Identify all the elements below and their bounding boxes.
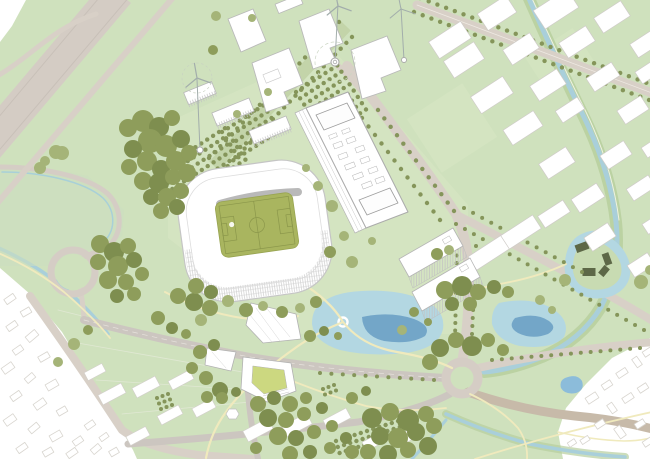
orchard-tree-dot	[236, 155, 240, 159]
street-tree-dot	[447, 23, 451, 27]
street-tree-dot	[376, 108, 380, 112]
tree	[407, 423, 425, 441]
orchard-tree-dot	[242, 151, 246, 155]
street-tree-dot	[560, 65, 564, 69]
orchard-tree-dot	[327, 385, 331, 389]
tree	[316, 402, 328, 414]
street-tree-dot	[629, 91, 633, 95]
tree	[211, 11, 221, 21]
street-tree-dot	[618, 348, 622, 352]
tree	[250, 396, 266, 412]
tree	[288, 430, 304, 446]
street-tree-dot	[418, 192, 422, 196]
street-tree-dot	[329, 372, 333, 376]
street-tree-dot	[454, 222, 458, 226]
street-tree-dot	[552, 278, 556, 282]
street-tree-dot	[366, 124, 370, 128]
orchard-tree-dot	[329, 67, 333, 71]
street-tree-dot	[549, 353, 553, 357]
tree	[409, 307, 419, 317]
orchard-tree-dot	[326, 87, 330, 91]
tree	[362, 408, 382, 428]
street-tree-dot	[425, 201, 429, 205]
tree	[431, 339, 449, 357]
street-tree-dot	[431, 209, 435, 213]
tree	[319, 326, 329, 336]
street-tree-dot	[438, 20, 442, 24]
tree	[445, 297, 459, 311]
wind-turbine-base	[197, 147, 203, 153]
tree	[334, 332, 342, 340]
orchard-tree-dot	[356, 95, 360, 99]
tree	[250, 442, 262, 454]
street-tree-dot	[454, 314, 458, 318]
street-tree-dot	[480, 216, 484, 220]
orchard-tree-dot	[211, 134, 215, 138]
street-tree-dot	[293, 93, 297, 97]
tree	[181, 329, 191, 339]
orchard-tree-dot	[347, 82, 351, 86]
street-tree-dot	[471, 316, 475, 320]
pond-small	[561, 376, 583, 393]
street-tree-dot	[535, 245, 539, 249]
street-tree-dot	[633, 323, 637, 327]
orchard-tree-dot	[308, 99, 312, 103]
tree	[178, 164, 196, 182]
street-tree-dot	[540, 41, 544, 45]
street-tree-dot	[429, 16, 433, 20]
street-tree-dot	[588, 298, 592, 302]
street-tree-dot	[444, 6, 448, 10]
street-tree-dot	[453, 329, 457, 333]
tree	[497, 344, 509, 356]
orchard-tree-dot	[155, 396, 159, 400]
tree	[422, 354, 438, 370]
street-tree-dot	[398, 376, 402, 380]
tree	[170, 288, 186, 304]
street-tree-dot	[608, 348, 612, 352]
orchard-tree-dot	[334, 389, 338, 393]
tree	[222, 295, 234, 307]
street-tree-dot	[462, 206, 466, 210]
street-tree-dot	[474, 244, 478, 248]
orchard-tree-dot	[360, 101, 364, 105]
street-tree-dot	[589, 350, 593, 354]
orchard-tree-dot	[298, 96, 302, 100]
street-tree-dot	[505, 28, 509, 32]
tree	[259, 409, 277, 427]
orchard-tree-dot	[321, 387, 325, 391]
street-tree-dot	[526, 262, 530, 266]
tree	[181, 145, 197, 161]
street-tree-dot	[421, 377, 425, 381]
tree	[53, 357, 63, 367]
orchard-tree-dot	[255, 107, 259, 111]
street-tree-dot	[445, 200, 449, 204]
orchard-tree-dot	[323, 393, 327, 397]
street-tree-dot	[568, 68, 572, 72]
street-tree-dot	[364, 374, 368, 378]
tree	[339, 231, 349, 241]
street-tree-dot	[432, 378, 436, 382]
tree	[436, 281, 454, 299]
street-tree-dot	[570, 288, 574, 292]
tree	[634, 275, 648, 289]
tree	[195, 314, 207, 326]
street-tree-dot	[577, 72, 581, 76]
street-tree-dot	[520, 356, 524, 360]
tree	[426, 418, 442, 434]
orchard-tree-dot	[219, 146, 223, 150]
orchard-tree-dot	[224, 136, 228, 140]
street-tree-dot	[571, 265, 575, 269]
street-tree-dot	[557, 48, 561, 52]
tree	[463, 297, 477, 311]
orchard-tree-dot	[248, 147, 252, 151]
orchard-tree-dot	[168, 398, 172, 402]
tree	[448, 332, 464, 348]
map-layers	[0, 0, 650, 459]
tree	[462, 336, 482, 356]
tree	[400, 442, 416, 458]
tree	[313, 181, 323, 191]
orchard-tree-dot	[228, 142, 232, 146]
orchard-tree-dot	[336, 90, 340, 94]
tree	[188, 278, 204, 294]
tree	[204, 285, 218, 299]
tree	[110, 289, 124, 303]
street-tree-dot	[386, 375, 390, 379]
street-tree-dot	[638, 346, 642, 350]
tree	[431, 248, 443, 260]
tree	[397, 325, 407, 335]
tree	[248, 14, 256, 22]
tree	[297, 407, 311, 421]
roundabout-center	[451, 367, 473, 389]
orchard-tree-dot	[337, 451, 341, 455]
tree	[361, 386, 371, 396]
orchard-tree-dot	[259, 113, 263, 117]
street-tree-dot	[627, 74, 631, 78]
street-tree-dot	[579, 293, 583, 297]
tree	[193, 345, 207, 359]
street-tree-dot	[395, 133, 399, 137]
street-tree-dot	[539, 354, 543, 358]
orchard-tree-dot	[306, 82, 310, 86]
orchard-tree-dot	[196, 161, 200, 165]
orchard-tree-dot	[383, 423, 387, 427]
street-tree-dot	[318, 371, 322, 375]
street-tree-dot	[473, 33, 477, 37]
street-tree-dot	[401, 141, 405, 145]
orchard-tree-dot	[312, 78, 316, 82]
street-tree-dot	[481, 237, 485, 241]
street-tree-dot	[409, 377, 413, 381]
street-tree-dot	[453, 9, 457, 13]
tree	[302, 164, 310, 172]
street-tree-dot	[405, 175, 409, 179]
orchard-tree-dot	[166, 392, 170, 396]
tree	[452, 276, 472, 296]
orchard-tree-dot	[234, 139, 238, 143]
orchard-tree-dot	[211, 160, 215, 164]
orchard-tree-dot	[322, 81, 326, 85]
orchard-tree-dot	[230, 132, 234, 136]
street-tree-dot	[606, 308, 610, 312]
orchard-tree-dot	[238, 145, 242, 149]
tree	[208, 45, 218, 55]
street-tree-dot	[642, 328, 646, 332]
tree	[216, 392, 228, 404]
street-tree-dot	[489, 221, 493, 225]
orchard-tree-dot	[207, 154, 211, 158]
orchard-tree-dot	[352, 88, 356, 92]
street-tree-dot	[421, 13, 425, 17]
tree	[276, 306, 288, 318]
tree	[424, 318, 432, 326]
tree	[324, 442, 336, 454]
tree	[127, 287, 141, 301]
street-tree-dot	[544, 250, 548, 254]
street-tree-dot	[574, 54, 578, 58]
orchard-tree-dot	[294, 90, 298, 94]
tree	[481, 333, 495, 347]
street-tree-dot	[499, 42, 503, 46]
orchard-tree-dot	[206, 164, 210, 168]
tree	[295, 303, 305, 313]
orchard-tree-dot	[332, 83, 336, 87]
street-tree-dot	[435, 2, 439, 6]
orchard-tree-dot	[213, 150, 217, 154]
orchard-tree-dot	[217, 156, 221, 160]
tree	[535, 295, 545, 305]
street-tree-dot	[615, 313, 619, 317]
street-tree-dot	[490, 358, 494, 362]
tree	[307, 425, 321, 439]
street-tree-dot	[472, 232, 476, 236]
tree	[278, 412, 294, 428]
street-tree-dot	[510, 356, 514, 360]
street-tree-dot	[490, 39, 494, 43]
orchard-tree-dot	[220, 130, 224, 134]
street-tree-dot	[386, 150, 390, 154]
orchard-tree-dot	[203, 148, 207, 152]
tree	[34, 162, 46, 174]
tree	[173, 183, 189, 199]
street-tree-dot	[569, 352, 573, 356]
tree	[269, 427, 287, 445]
orchard-tree-dot	[205, 137, 209, 141]
tree	[90, 254, 106, 270]
tree	[201, 391, 213, 403]
tree	[126, 252, 142, 268]
orchard-tree-dot	[221, 163, 225, 167]
orchard-tree-dot	[336, 445, 340, 449]
street-tree-dot	[471, 211, 475, 215]
tree	[282, 396, 298, 412]
orchard-tree-dot	[242, 125, 246, 129]
street-tree-dot	[559, 352, 563, 356]
orchard-tree-dot	[159, 407, 163, 411]
street-tree-dot	[544, 272, 548, 276]
tree	[264, 88, 272, 96]
orchard-tree-dot	[209, 144, 213, 148]
street-tree-dot	[562, 260, 566, 264]
tree	[444, 245, 454, 255]
orchard-tree-dot	[248, 121, 252, 125]
tree	[153, 203, 169, 219]
street-tree-dot	[452, 209, 456, 213]
street-tree-dot	[599, 349, 603, 353]
orchard-tree-dot	[226, 126, 230, 130]
street-tree-dot	[542, 59, 546, 63]
roundabout-west-center	[55, 254, 91, 290]
screenshot-root	[0, 0, 650, 459]
orchard-tree-dot	[200, 168, 204, 172]
orchard-tree-dot	[215, 140, 219, 144]
orchard-tree-dot	[314, 95, 318, 99]
tree	[326, 420, 338, 432]
street-tree-dot	[379, 141, 383, 145]
orchard-tree-dot	[232, 149, 236, 153]
tree	[135, 267, 149, 281]
street-tree-dot	[583, 58, 587, 62]
street-tree-dot	[438, 218, 442, 222]
street-tree-dot	[373, 133, 377, 137]
orchard-tree-dot	[227, 159, 231, 163]
street-tree-dot	[382, 116, 386, 120]
orchard-tree-dot	[359, 431, 363, 435]
tree	[68, 338, 80, 350]
tree	[143, 189, 159, 205]
orchard-tree-dot	[157, 402, 161, 406]
street-tree-dot	[517, 257, 521, 261]
tree	[49, 145, 63, 159]
tree	[166, 322, 178, 334]
street-tree-dot	[338, 47, 342, 51]
tree	[300, 392, 312, 404]
tree	[99, 271, 117, 289]
tree	[303, 445, 317, 459]
tree	[258, 301, 268, 311]
tree	[186, 362, 198, 374]
street-tree-dot	[508, 252, 512, 256]
street-tree-dot	[621, 88, 625, 92]
orchard-tree-dot	[354, 439, 358, 443]
orchard-tree-dot	[253, 117, 257, 121]
tree	[120, 238, 136, 254]
street-tree-dot	[463, 227, 467, 231]
orchard-tree-dot	[163, 400, 167, 404]
orchard-tree-dot	[320, 91, 324, 95]
wind-turbine-base	[331, 58, 339, 66]
street-tree-dot	[303, 55, 307, 59]
tree	[208, 339, 220, 351]
orchard-tree-dot	[201, 158, 205, 162]
tree	[502, 286, 514, 298]
street-tree-dot	[414, 158, 418, 162]
tree	[231, 387, 241, 397]
street-tree-dot	[553, 255, 557, 259]
orchard-tree-dot	[244, 141, 248, 145]
street-tree-dot	[551, 62, 555, 66]
tree	[151, 311, 165, 325]
orchard-tree-dot	[352, 433, 356, 437]
orchard-tree-dot	[334, 439, 338, 443]
tree	[368, 237, 376, 245]
street-tree-dot	[597, 303, 601, 307]
street-tree-dot	[470, 15, 474, 19]
street-tree-dot	[453, 321, 457, 325]
street-tree-dot	[612, 85, 616, 89]
street-tree-dot	[388, 125, 392, 129]
tree	[419, 437, 437, 455]
tree	[169, 199, 185, 215]
orchard-tree-dot	[236, 129, 240, 133]
orchard-tree-dot	[365, 429, 369, 433]
hexagon-kiosk	[226, 409, 239, 419]
orchard-tree-dot	[333, 73, 337, 77]
street-tree-dot	[496, 25, 500, 29]
street-tree-dot	[350, 35, 354, 39]
tree	[326, 200, 338, 212]
tree	[233, 110, 241, 118]
tree	[340, 432, 352, 444]
tree	[346, 392, 358, 404]
tree	[304, 330, 316, 342]
orchard-tree-dot	[316, 85, 320, 89]
tree	[345, 445, 359, 459]
orchard-tree-dot	[243, 158, 247, 162]
orchard-tree-dot	[170, 403, 174, 407]
orchard-tree-dot	[329, 391, 333, 395]
tree	[559, 274, 571, 286]
orchard-tree-dot	[223, 153, 227, 157]
street-tree-dot	[392, 158, 396, 162]
street-tree-dot	[534, 55, 538, 59]
tree	[371, 427, 389, 445]
street-tree-dot	[426, 175, 430, 179]
tree	[185, 293, 203, 311]
orchard-tree-dot	[269, 116, 273, 120]
orchard-tree-dot	[304, 92, 308, 96]
orchard-tree-dot	[332, 383, 336, 387]
orchard-tree-dot	[360, 437, 364, 441]
orchard-tree-dot	[342, 86, 346, 90]
street-tree-dot	[470, 332, 474, 336]
street-tree-dot	[500, 357, 504, 361]
street-tree-dot	[276, 111, 280, 115]
tree	[164, 110, 180, 126]
orchard-tree-dot	[165, 405, 169, 409]
street-tree-dot	[628, 347, 632, 351]
street-tree-dot	[548, 45, 552, 49]
street-tree-dot	[399, 167, 403, 171]
street-tree-dot	[352, 373, 356, 377]
orchard-tree-dot	[240, 135, 244, 139]
tree	[267, 391, 281, 405]
tree	[202, 300, 218, 316]
street-tree-dot	[316, 70, 320, 74]
street-tree-dot	[461, 12, 465, 16]
street-tree-dot	[420, 167, 424, 171]
street-tree-dot	[407, 150, 411, 154]
orchard-tree-dot	[300, 86, 304, 90]
tree	[199, 371, 213, 385]
street-tree-dot	[580, 270, 584, 274]
street-tree-dot	[297, 61, 301, 65]
orchard-tree-dot	[323, 71, 327, 75]
